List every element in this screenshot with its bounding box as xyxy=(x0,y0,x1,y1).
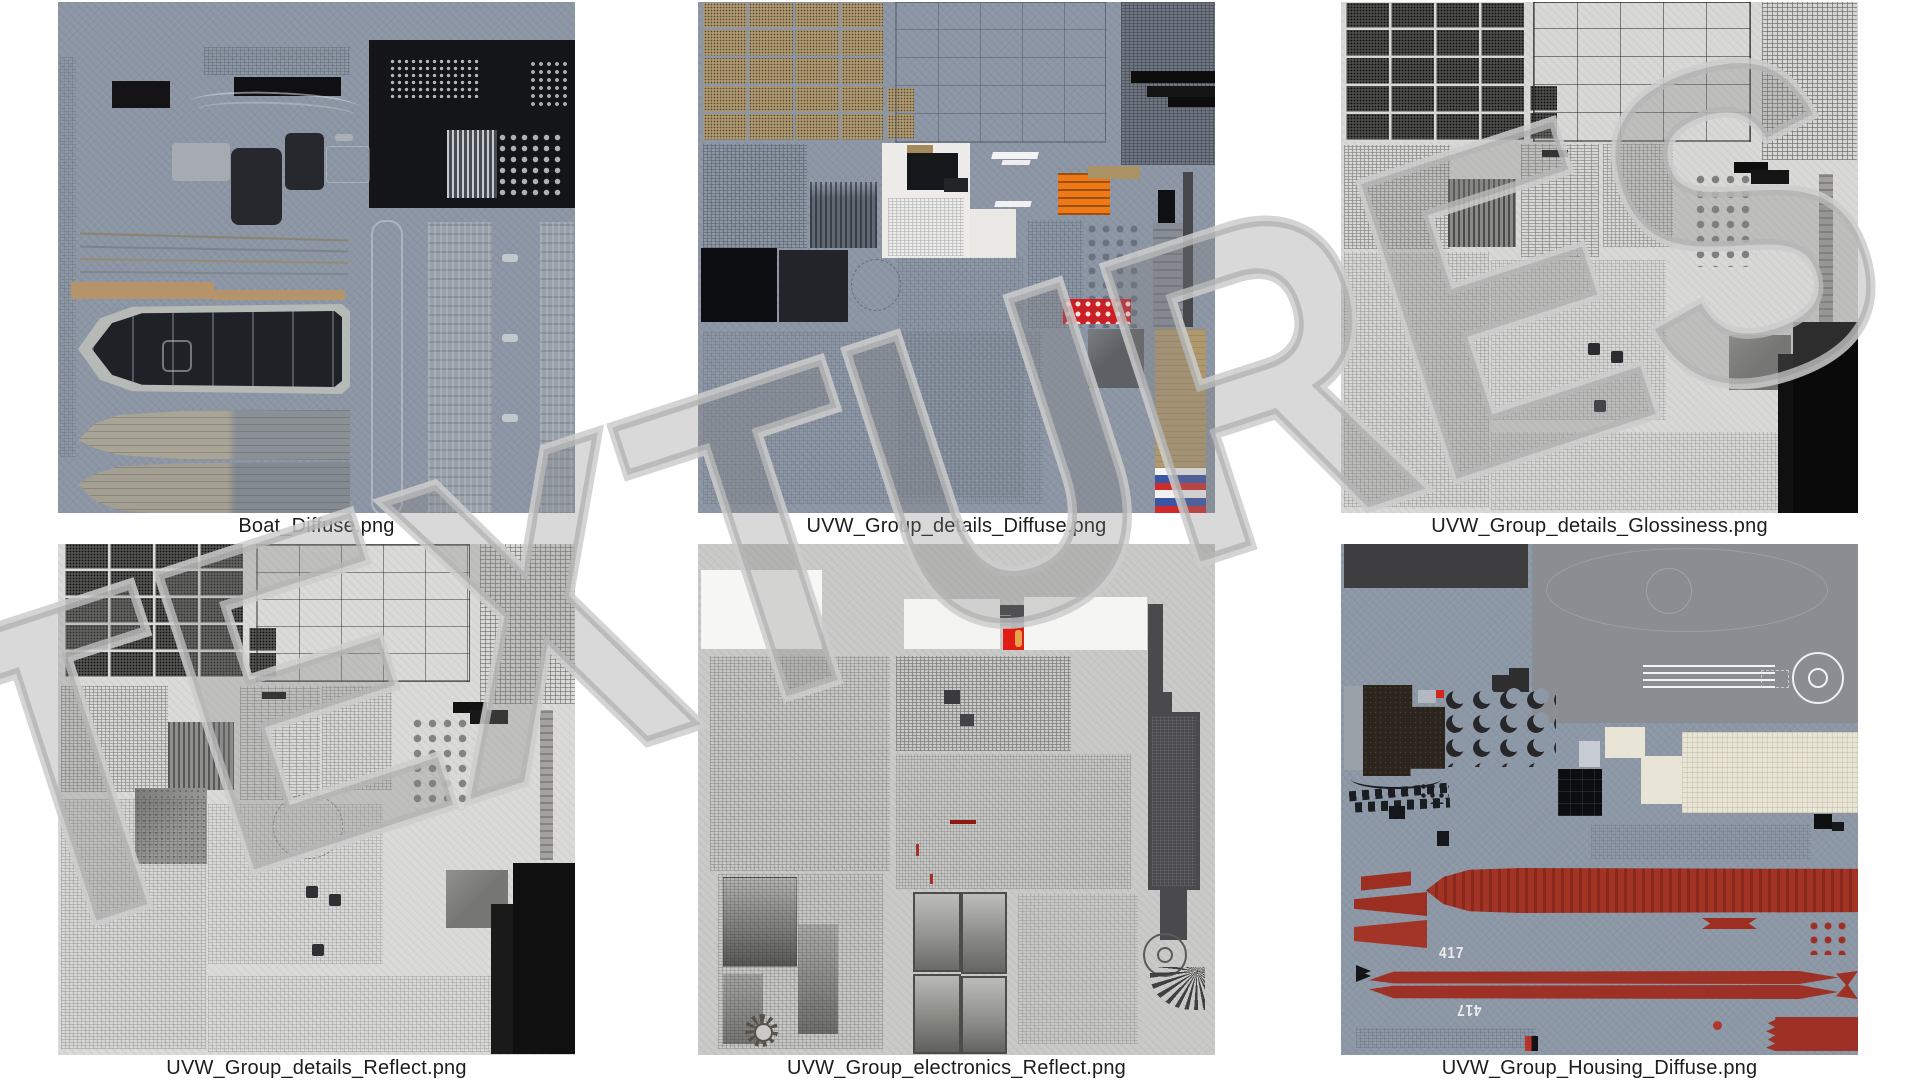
dark-chip xyxy=(960,714,974,726)
noise-block xyxy=(208,976,518,1052)
pill-shape xyxy=(502,254,518,262)
white-panel-extension xyxy=(970,209,1016,258)
dark-detail-panel xyxy=(1121,2,1215,165)
tan-wood-strip xyxy=(71,282,214,299)
hull-number-decal: 417 xyxy=(1439,945,1478,961)
dark-stepped-region xyxy=(1148,692,1172,712)
black-bit xyxy=(1814,814,1832,829)
dark-chip xyxy=(329,894,341,906)
black-panel xyxy=(369,40,575,208)
framed-panel xyxy=(961,976,1007,1054)
texture-preview-electronics-reflect xyxy=(698,544,1215,1055)
strip-line xyxy=(80,246,348,253)
propeller-blade-field xyxy=(1441,687,1556,767)
black-region-step xyxy=(1778,354,1793,513)
ring-outline xyxy=(1646,568,1692,614)
striped-block xyxy=(447,130,497,198)
red-line xyxy=(950,820,976,824)
black-step-bar xyxy=(1131,71,1215,83)
red-square-cluster xyxy=(1807,919,1847,955)
framed-panels xyxy=(913,892,1007,1054)
electronics-lineart xyxy=(1018,894,1138,1044)
orange-pill xyxy=(1015,630,1022,647)
noise-block xyxy=(1152,716,1196,886)
texture-thumbnail-electronics-reflect: UVW_Group_electronics_Reflect.png xyxy=(698,544,1215,1079)
black-patch-step xyxy=(944,178,968,192)
framed-panel xyxy=(913,892,961,972)
gray-chip xyxy=(1418,690,1436,703)
texture-filename: Boat_Diffuse.png xyxy=(58,515,575,537)
mottled-panel xyxy=(172,143,230,181)
dense-lineart-block xyxy=(480,544,575,704)
hull-shape xyxy=(78,462,350,513)
gray-slab xyxy=(1344,686,1364,770)
dense-lineart-block xyxy=(1762,2,1857,160)
pill-shape xyxy=(335,134,353,141)
noise-block xyxy=(703,144,807,248)
noise-block xyxy=(61,686,168,792)
dashed-circle xyxy=(851,259,901,311)
striped-chip xyxy=(1000,616,1011,628)
white-streak xyxy=(991,152,1039,159)
noise-block xyxy=(322,686,392,790)
tan-chip xyxy=(1088,166,1140,179)
white-streak xyxy=(994,201,1032,207)
dark-stepped-region xyxy=(1148,712,1200,890)
tan-mesh-grid xyxy=(701,3,883,142)
noise-block xyxy=(1591,824,1811,859)
boat-deck-planks xyxy=(92,311,342,387)
black-square xyxy=(1558,769,1602,816)
dark-square xyxy=(779,250,848,322)
gunwale-strips xyxy=(80,234,348,282)
texture-contact-sheet: Boat_Diffuse.png xyxy=(0,0,1920,1080)
strip-line xyxy=(80,271,348,275)
texture-filename: UVW_Group_details_Glossiness.png xyxy=(1341,515,1858,537)
light-plate-cluster xyxy=(529,60,571,110)
striped-dark-block xyxy=(168,722,234,790)
electronics-lineart xyxy=(710,656,890,871)
texture-thumbnail-details-reflect: UVW_Group_details_Reflect.png xyxy=(58,544,575,1079)
dark-hatch-cover xyxy=(231,148,282,225)
smudged-panel xyxy=(723,877,797,967)
channel-outline xyxy=(371,220,403,513)
noise-block xyxy=(1121,2,1215,165)
black-bit xyxy=(1832,822,1844,831)
white-streak xyxy=(1001,160,1030,165)
red-chip xyxy=(1003,628,1024,650)
black-region xyxy=(1793,322,1858,513)
dark-mesh-grid xyxy=(63,544,243,679)
noise-block xyxy=(1491,432,1791,510)
torpedo-body xyxy=(1426,868,1858,913)
cream-patch xyxy=(1605,727,1645,758)
noise-block xyxy=(240,686,320,800)
black-bar xyxy=(1542,150,1568,157)
pill-shape xyxy=(502,414,518,422)
texture-thumbnail-housing-diffuse: 417 417 UVW_Group_Housing_Diffuse.png xyxy=(1341,544,1858,1079)
torpedo-strip xyxy=(1369,971,1858,984)
electronics-lineart xyxy=(896,656,1071,751)
texture-filename: UVW_Group_details_Diffuse.png xyxy=(698,515,1215,537)
dark-chip xyxy=(306,886,318,898)
noise-block xyxy=(1491,260,1666,420)
white-lines xyxy=(1643,662,1775,688)
red-zigzag-block xyxy=(1766,1017,1858,1051)
deck-hatch-outline xyxy=(162,340,192,372)
black-rect xyxy=(1158,190,1175,223)
dark-chip xyxy=(1611,351,1623,363)
texture-filename: UVW_Group_electronics_Reflect.png xyxy=(698,1057,1215,1079)
texture-preview-details-diffuse xyxy=(698,2,1215,513)
outline-grid xyxy=(895,2,1106,143)
texture-preview-boat-diffuse xyxy=(58,2,575,513)
torpedo-strip xyxy=(1369,985,1858,999)
striped-dark-block xyxy=(810,182,877,248)
noise-block xyxy=(1344,145,1450,249)
outline-panel xyxy=(326,146,370,183)
noise-block xyxy=(1344,252,1489,507)
texture-thumbnail-details-glossiness: UVW_Group_details_Glossiness.png xyxy=(1341,2,1858,537)
white-panel xyxy=(1024,597,1147,650)
black-rect xyxy=(112,81,170,108)
hull-shape xyxy=(78,410,350,460)
texture-thumbnail-details-diffuse: UVW_Group_details_Diffuse.png xyxy=(698,2,1215,537)
striped-dark-block xyxy=(1448,179,1516,247)
noise-block xyxy=(1356,1028,1536,1048)
texture-thumbnail-boat-diffuse: Boat_Diffuse.png xyxy=(58,2,575,537)
gray-strip xyxy=(540,710,553,860)
photo-row-grid xyxy=(1693,172,1757,267)
dark-chip xyxy=(312,944,324,956)
black-step-bar xyxy=(470,710,508,724)
dark-gray-square xyxy=(1088,329,1144,388)
gauge-inner xyxy=(1157,947,1173,963)
noise-block xyxy=(204,47,350,75)
dark-stepped-region xyxy=(1148,604,1163,692)
photo-row-grid xyxy=(410,716,474,810)
dark-mesh-grid xyxy=(1344,3,1524,142)
mottled-band xyxy=(428,222,492,513)
tick-cluster xyxy=(1419,782,1449,804)
cream-patch xyxy=(1682,732,1858,813)
gray-strip xyxy=(1819,174,1833,324)
dark-chip xyxy=(1594,400,1606,412)
black-step-bar xyxy=(1147,86,1215,97)
charcoal-rect xyxy=(1344,544,1528,588)
framed-panel xyxy=(961,892,1007,974)
black-bit xyxy=(1437,831,1449,846)
texture-filename: UVW_Group_Housing_Diffuse.png xyxy=(1341,1057,1858,1079)
plate-grid xyxy=(497,132,561,196)
electronics-lineart xyxy=(896,754,1131,889)
strip-line xyxy=(80,258,348,264)
outline-grid xyxy=(256,544,470,682)
dark-chip xyxy=(1588,343,1600,355)
dashed-box xyxy=(1761,670,1789,688)
black-square xyxy=(701,248,777,322)
tan-strip xyxy=(1155,329,1206,468)
white-circle-inner xyxy=(1808,668,1828,688)
sunburst-shape xyxy=(745,1014,778,1047)
tan-wood-strip xyxy=(214,290,345,300)
texture-filename: UVW_Group_details_Reflect.png xyxy=(58,1057,575,1079)
texture-preview-housing-diffuse: 417 417 xyxy=(1341,544,1858,1055)
framed-panel xyxy=(913,974,961,1054)
white-panel xyxy=(701,570,822,649)
noise-block xyxy=(61,799,206,1049)
noise-block xyxy=(888,198,964,256)
light-plate-cluster xyxy=(389,58,479,98)
gray-band xyxy=(1153,223,1183,327)
dark-hatch-cover xyxy=(285,133,324,190)
mottled-band xyxy=(540,222,574,513)
red-tick xyxy=(916,844,919,856)
cream-patch xyxy=(1641,756,1683,804)
white-panel xyxy=(904,599,1000,649)
light-chip xyxy=(1579,741,1600,767)
strip-line xyxy=(80,232,348,241)
texture-preview-details-reflect xyxy=(58,544,575,1055)
black-step-bar xyxy=(1168,97,1215,107)
sunburst-center xyxy=(754,1023,773,1042)
noise-block xyxy=(208,804,383,964)
black-step-bar xyxy=(1751,170,1789,184)
pill-shape xyxy=(502,334,518,342)
dark-chip xyxy=(944,690,960,704)
black-region xyxy=(513,863,575,1054)
black-bar xyxy=(262,692,286,699)
black-region-step xyxy=(491,904,513,1054)
orange-patch xyxy=(1058,173,1110,215)
texture-preview-details-glossiness xyxy=(1341,2,1858,513)
smudged-panel xyxy=(798,924,838,1034)
outline-grid xyxy=(1533,2,1751,142)
noise-block xyxy=(898,257,1023,497)
noise-block xyxy=(1603,144,1673,247)
black-bit xyxy=(1389,806,1405,819)
russian-flag-stripes xyxy=(1155,468,1206,513)
dark-step-block xyxy=(1509,668,1529,678)
white-circle xyxy=(1792,652,1844,704)
red-patch xyxy=(1063,299,1131,324)
red-tick xyxy=(930,874,933,884)
red-chevron xyxy=(1702,918,1757,929)
noise-block xyxy=(1521,144,1599,257)
dark-strip xyxy=(1183,172,1193,327)
hull-number-decal-rotated: 417 xyxy=(1442,1002,1481,1018)
noise-block xyxy=(60,57,76,457)
red-dot xyxy=(1713,1021,1722,1030)
